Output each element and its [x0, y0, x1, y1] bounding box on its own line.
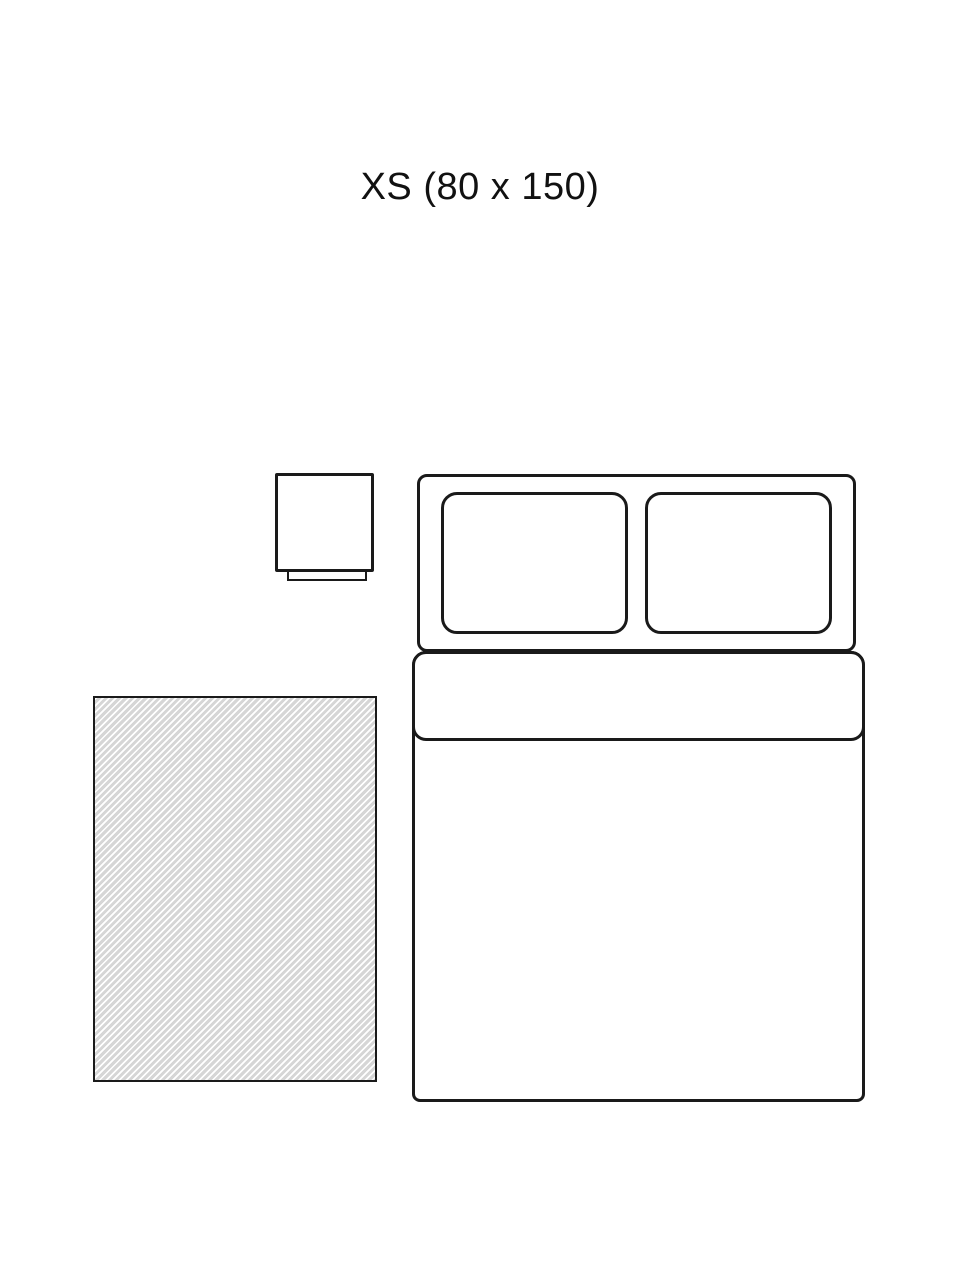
size-title: XS (80 x 150): [0, 167, 960, 209]
bed-duvet-fold: [412, 651, 865, 741]
nightstand-base: [287, 572, 367, 581]
pillow-right-icon: [645, 492, 832, 634]
nightstand-icon: [275, 473, 374, 572]
rug-icon: [93, 696, 377, 1082]
rug-size-guide-diagram: XS (80 x 150): [0, 0, 960, 1280]
pillow-left-icon: [441, 492, 628, 634]
